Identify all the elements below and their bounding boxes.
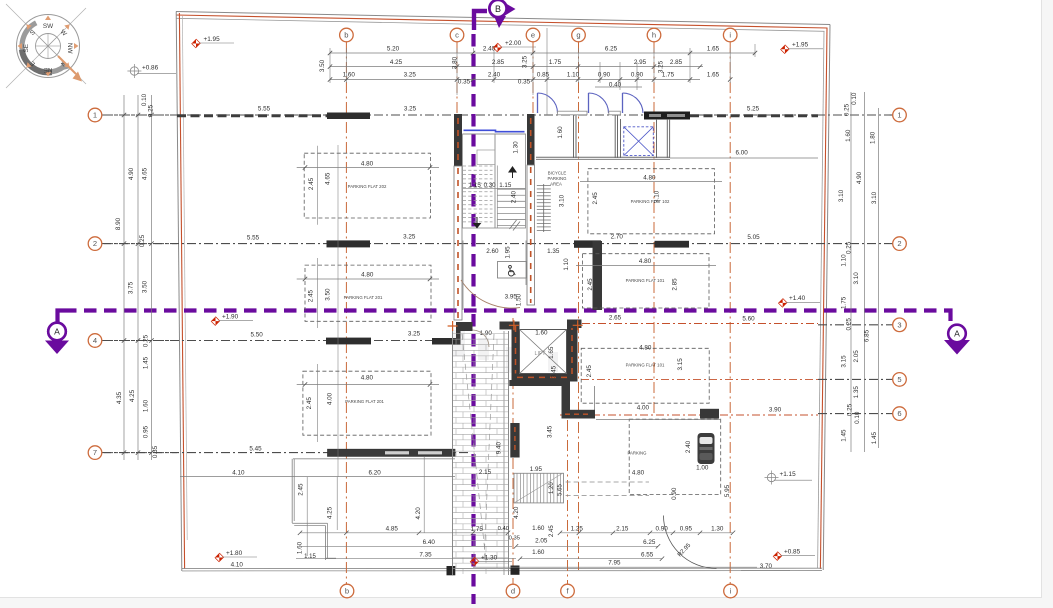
svg-text:+1.90: +1.90 xyxy=(222,313,239,320)
svg-text:1.60: 1.60 xyxy=(343,72,356,79)
svg-text:1.75: 1.75 xyxy=(840,296,847,309)
svg-text:0.10: 0.10 xyxy=(854,411,861,424)
svg-text:4.80: 4.80 xyxy=(639,344,652,351)
svg-text:0.40: 0.40 xyxy=(609,82,622,89)
svg-text:W: W xyxy=(59,28,69,38)
svg-text:0.35: 0.35 xyxy=(518,79,531,86)
svg-text:6.25: 6.25 xyxy=(605,46,618,53)
svg-text:2.45: 2.45 xyxy=(587,278,594,291)
svg-text:+1.30: +1.30 xyxy=(481,555,498,562)
svg-text:0.40: 0.40 xyxy=(498,526,509,532)
svg-text:3.10: 3.10 xyxy=(853,272,860,285)
svg-text:NE: NE xyxy=(44,66,53,73)
svg-text:5.05: 5.05 xyxy=(747,234,760,241)
svg-text:4.80: 4.80 xyxy=(632,469,645,476)
svg-text:7: 7 xyxy=(93,448,97,457)
svg-text:NW: NW xyxy=(66,43,73,55)
svg-text:4.35: 4.35 xyxy=(116,391,123,404)
svg-text:0.25: 0.25 xyxy=(142,334,149,347)
svg-text:3.50: 3.50 xyxy=(325,288,332,301)
svg-text:1.45: 1.45 xyxy=(871,431,878,444)
svg-text:5.25: 5.25 xyxy=(747,106,760,113)
svg-text:+1.95: +1.95 xyxy=(792,42,809,49)
svg-text:4: 4 xyxy=(93,336,97,345)
svg-text:4.80: 4.80 xyxy=(361,272,374,279)
svg-text:1.75: 1.75 xyxy=(471,526,484,533)
svg-text:3.25: 3.25 xyxy=(408,331,421,338)
svg-text:1.00: 1.00 xyxy=(696,465,709,472)
svg-text:1.60: 1.60 xyxy=(532,549,545,556)
svg-text:PARKING FLAT 201: PARKING FLAT 201 xyxy=(345,399,384,404)
svg-text:3.45: 3.45 xyxy=(550,365,557,378)
svg-text:7.95: 7.95 xyxy=(608,559,621,566)
svg-text:4.00: 4.00 xyxy=(637,405,650,412)
svg-text:2.40: 2.40 xyxy=(483,46,496,53)
svg-text:5: 5 xyxy=(897,375,901,384)
svg-text:3.10: 3.10 xyxy=(871,191,878,204)
svg-text:3.10: 3.10 xyxy=(653,190,660,203)
svg-text:4.90: 4.90 xyxy=(856,171,863,184)
svg-text:PARKING FLAT 102: PARKING FLAT 102 xyxy=(631,199,670,204)
svg-text:PARKING FLAT 101: PARKING FLAT 101 xyxy=(626,363,665,368)
svg-text:0.90: 0.90 xyxy=(655,525,668,532)
svg-text:+1.95: +1.95 xyxy=(204,36,221,43)
svg-text:2.40: 2.40 xyxy=(685,440,692,453)
svg-text:d: d xyxy=(511,587,515,596)
svg-text:1.60: 1.60 xyxy=(532,525,545,532)
svg-text:3.90: 3.90 xyxy=(769,406,782,413)
svg-text:1.35: 1.35 xyxy=(853,386,860,399)
svg-text:4.80: 4.80 xyxy=(361,160,374,167)
svg-text:LIFT: LIFT xyxy=(534,351,546,357)
svg-text:2.95: 2.95 xyxy=(634,59,647,66)
svg-text:2.15: 2.15 xyxy=(479,469,492,476)
svg-text:4.20: 4.20 xyxy=(513,506,520,519)
svg-text:1.60: 1.60 xyxy=(142,399,149,412)
svg-text:2.45: 2.45 xyxy=(297,483,304,496)
svg-text:2.45: 2.45 xyxy=(549,525,555,537)
svg-text:1.50: 1.50 xyxy=(516,293,523,306)
svg-text:4.00: 4.00 xyxy=(327,392,334,405)
svg-text:9.40: 9.40 xyxy=(495,441,502,454)
svg-text:1.60: 1.60 xyxy=(845,129,852,142)
svg-text:SW: SW xyxy=(43,23,54,30)
svg-text:1.15: 1.15 xyxy=(499,182,512,189)
svg-text:0.35: 0.35 xyxy=(152,445,159,458)
svg-text:g: g xyxy=(576,31,580,40)
svg-text:4.80: 4.80 xyxy=(639,258,652,265)
svg-text:6.00: 6.00 xyxy=(735,149,748,156)
svg-text:4.65: 4.65 xyxy=(325,172,332,185)
svg-text:3.50: 3.50 xyxy=(319,59,326,72)
svg-text:1.35: 1.35 xyxy=(547,248,560,255)
svg-text:0.25: 0.25 xyxy=(846,241,853,254)
svg-text:1.65: 1.65 xyxy=(548,346,555,359)
svg-text:1.95: 1.95 xyxy=(530,466,543,473)
svg-text:1.60: 1.60 xyxy=(297,541,304,554)
svg-text:5.55: 5.55 xyxy=(258,106,271,113)
svg-text:6.25: 6.25 xyxy=(643,539,656,546)
svg-text:0.10: 0.10 xyxy=(141,93,148,106)
svg-text:3.50: 3.50 xyxy=(142,280,149,293)
svg-text:4.25: 4.25 xyxy=(390,59,403,66)
svg-text:3.25: 3.25 xyxy=(403,233,416,240)
svg-text:0.85: 0.85 xyxy=(537,72,550,79)
svg-text:2.85: 2.85 xyxy=(672,278,679,291)
svg-text:2.40: 2.40 xyxy=(488,72,501,79)
svg-text:3.70: 3.70 xyxy=(760,563,773,570)
svg-text:2.85: 2.85 xyxy=(492,59,505,66)
svg-text:b: b xyxy=(345,587,349,596)
svg-text:2.60: 2.60 xyxy=(486,248,499,255)
svg-text:0.30: 0.30 xyxy=(484,182,497,189)
svg-text:3.45: 3.45 xyxy=(547,425,554,438)
svg-text:2: 2 xyxy=(93,239,97,248)
svg-text:1.45: 1.45 xyxy=(142,356,149,369)
svg-text:6.40: 6.40 xyxy=(423,539,436,546)
svg-text:6.55: 6.55 xyxy=(641,551,654,558)
svg-text:1.45: 1.45 xyxy=(840,429,847,442)
svg-text:3.80: 3.80 xyxy=(452,56,459,69)
svg-text:1.30: 1.30 xyxy=(711,525,724,532)
svg-text:PARKING FLAT 202: PARKING FLAT 202 xyxy=(348,184,387,189)
svg-text:4.25: 4.25 xyxy=(129,389,136,402)
svg-text:S: S xyxy=(29,29,37,37)
svg-text:PARKING FLAT 101: PARKING FLAT 101 xyxy=(626,278,665,283)
svg-text:1.80: 1.80 xyxy=(870,131,877,144)
svg-text:1.15: 1.15 xyxy=(469,182,482,189)
svg-text:5.55: 5.55 xyxy=(247,234,260,241)
svg-text:1.65: 1.65 xyxy=(707,72,720,79)
svg-text:3.10: 3.10 xyxy=(838,189,845,202)
svg-text:5.20: 5.20 xyxy=(387,46,400,53)
svg-text:e: e xyxy=(531,31,535,40)
svg-text:1.95: 1.95 xyxy=(504,246,511,259)
svg-text:0.10: 0.10 xyxy=(851,92,858,105)
svg-text:7.35: 7.35 xyxy=(419,551,432,558)
svg-text:1: 1 xyxy=(93,111,97,120)
svg-text:2.45: 2.45 xyxy=(308,177,315,190)
svg-text:b: b xyxy=(344,31,348,40)
svg-text:0.35: 0.35 xyxy=(509,536,520,542)
svg-text:6.20: 6.20 xyxy=(368,469,381,476)
svg-text:1.60: 1.60 xyxy=(535,330,548,337)
svg-text:1.20: 1.20 xyxy=(549,482,555,494)
svg-text:4.25: 4.25 xyxy=(327,506,334,519)
svg-text:0.35: 0.35 xyxy=(458,79,471,86)
svg-text:1.65: 1.65 xyxy=(707,46,720,53)
svg-text:5.50: 5.50 xyxy=(250,332,263,339)
svg-text:6.85: 6.85 xyxy=(863,329,870,342)
svg-text:4.10: 4.10 xyxy=(231,561,244,568)
svg-text:0.25: 0.25 xyxy=(139,234,146,247)
svg-text:1.25: 1.25 xyxy=(571,525,584,532)
svg-text:BICYCLE: BICYCLE xyxy=(548,171,567,176)
svg-text:3: 3 xyxy=(897,320,901,329)
svg-text:4.90: 4.90 xyxy=(128,167,135,180)
svg-text:2.05: 2.05 xyxy=(535,538,548,545)
svg-text:4.80: 4.80 xyxy=(361,375,374,382)
svg-text:0.25: 0.25 xyxy=(846,318,853,331)
svg-text:0.90: 0.90 xyxy=(671,487,678,500)
svg-text:2.65: 2.65 xyxy=(609,315,622,322)
svg-text:0.95: 0.95 xyxy=(680,525,693,532)
svg-text:1.60: 1.60 xyxy=(557,126,564,139)
svg-text:A: A xyxy=(54,327,60,337)
svg-text:PARKING FLAT 201: PARKING FLAT 201 xyxy=(344,295,383,300)
svg-text:2.45: 2.45 xyxy=(586,365,593,378)
svg-text:1.30: 1.30 xyxy=(513,141,520,154)
svg-text:0.95: 0.95 xyxy=(142,425,149,438)
svg-text:A: A xyxy=(954,329,960,339)
svg-text:4.80: 4.80 xyxy=(643,174,656,181)
svg-text:+1.15: +1.15 xyxy=(780,471,797,478)
svg-text:1.75: 1.75 xyxy=(549,59,562,66)
svg-text:+0.86: +0.86 xyxy=(142,64,159,71)
svg-text:1.10: 1.10 xyxy=(840,254,847,267)
svg-text:2: 2 xyxy=(897,239,901,248)
svg-text:2.45: 2.45 xyxy=(308,289,315,302)
svg-text:+1.40: +1.40 xyxy=(789,295,806,302)
svg-text:2.15: 2.15 xyxy=(616,525,629,532)
svg-text:5.45: 5.45 xyxy=(249,446,262,453)
svg-text:3.25: 3.25 xyxy=(404,106,417,113)
svg-text:1.10: 1.10 xyxy=(563,258,570,271)
svg-text:0.25: 0.25 xyxy=(847,403,854,416)
svg-text:3.15: 3.15 xyxy=(840,355,847,368)
svg-text:3.25: 3.25 xyxy=(404,72,417,79)
svg-text:2.40: 2.40 xyxy=(510,190,517,203)
svg-text:2.45: 2.45 xyxy=(592,192,599,205)
svg-text:+0.85: +0.85 xyxy=(784,548,801,555)
svg-text:AREA: AREA xyxy=(550,182,562,187)
svg-text:8.90: 8.90 xyxy=(115,217,122,230)
svg-text:4.65: 4.65 xyxy=(142,167,149,180)
svg-text:3.10: 3.10 xyxy=(559,194,566,207)
svg-text:5.60: 5.60 xyxy=(742,316,755,323)
svg-text:2.05: 2.05 xyxy=(853,350,860,363)
svg-text:SE: SE xyxy=(23,44,30,53)
svg-text:2.45: 2.45 xyxy=(306,397,313,410)
svg-text:4.85: 4.85 xyxy=(386,525,399,532)
svg-text:5.65: 5.65 xyxy=(558,484,564,496)
svg-text:R2.95: R2.95 xyxy=(677,542,693,558)
svg-text:2.70: 2.70 xyxy=(611,234,624,241)
svg-text:1: 1 xyxy=(897,111,901,120)
svg-text:4.10: 4.10 xyxy=(232,469,245,476)
svg-text:6: 6 xyxy=(897,409,901,418)
svg-text:0.25: 0.25 xyxy=(844,103,851,116)
svg-text:3.25: 3.25 xyxy=(522,55,529,68)
svg-text:3.75: 3.75 xyxy=(128,281,135,294)
svg-text:3.15: 3.15 xyxy=(677,358,684,371)
svg-text:B: B xyxy=(495,4,501,14)
svg-text:3.25: 3.25 xyxy=(658,60,665,73)
svg-text:0.90: 0.90 xyxy=(598,72,611,79)
svg-text:h: h xyxy=(652,31,656,40)
svg-text:2.85: 2.85 xyxy=(670,59,683,66)
svg-text:4.20: 4.20 xyxy=(415,507,422,520)
svg-text:5.95: 5.95 xyxy=(724,484,731,497)
svg-text:+2.00: +2.00 xyxy=(505,40,522,47)
svg-text:PARKING: PARKING xyxy=(627,451,647,456)
svg-text:1.10: 1.10 xyxy=(567,72,580,79)
svg-text:0.90: 0.90 xyxy=(631,72,644,79)
svg-text:c: c xyxy=(455,31,459,40)
svg-text:+1.80: +1.80 xyxy=(226,550,243,557)
svg-text:PARKING: PARKING xyxy=(547,176,567,181)
